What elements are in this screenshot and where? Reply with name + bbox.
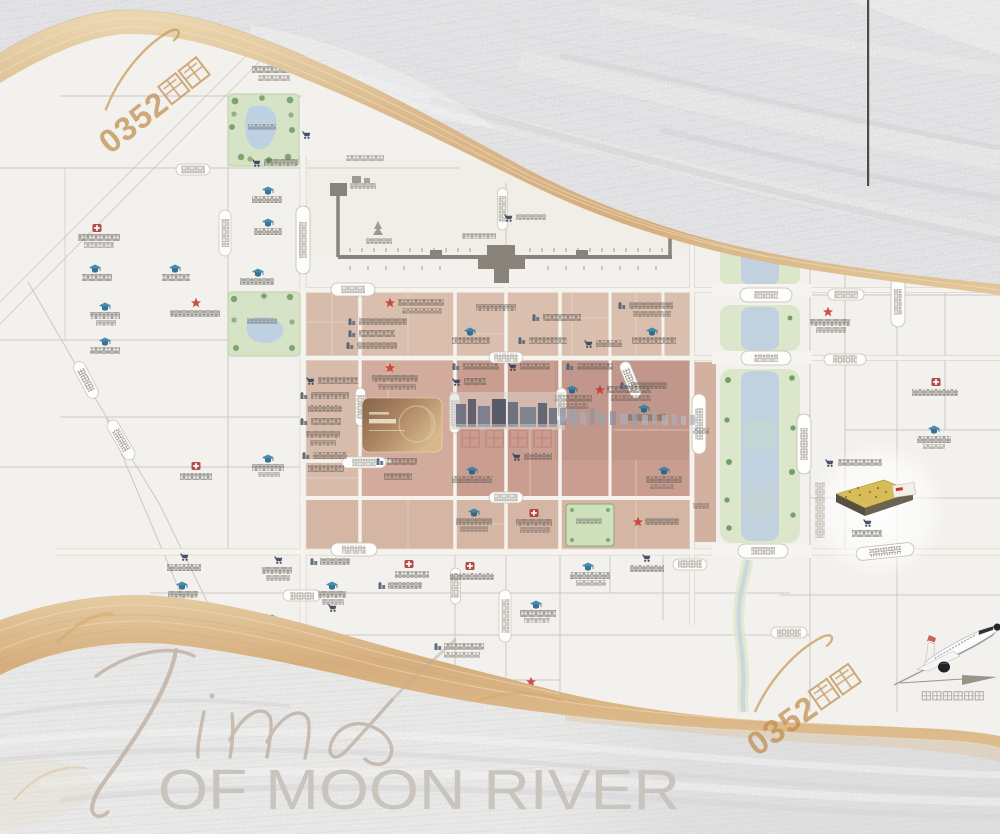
svg-text:OF MOON RIVER: OF MOON RIVER: [158, 758, 680, 822]
